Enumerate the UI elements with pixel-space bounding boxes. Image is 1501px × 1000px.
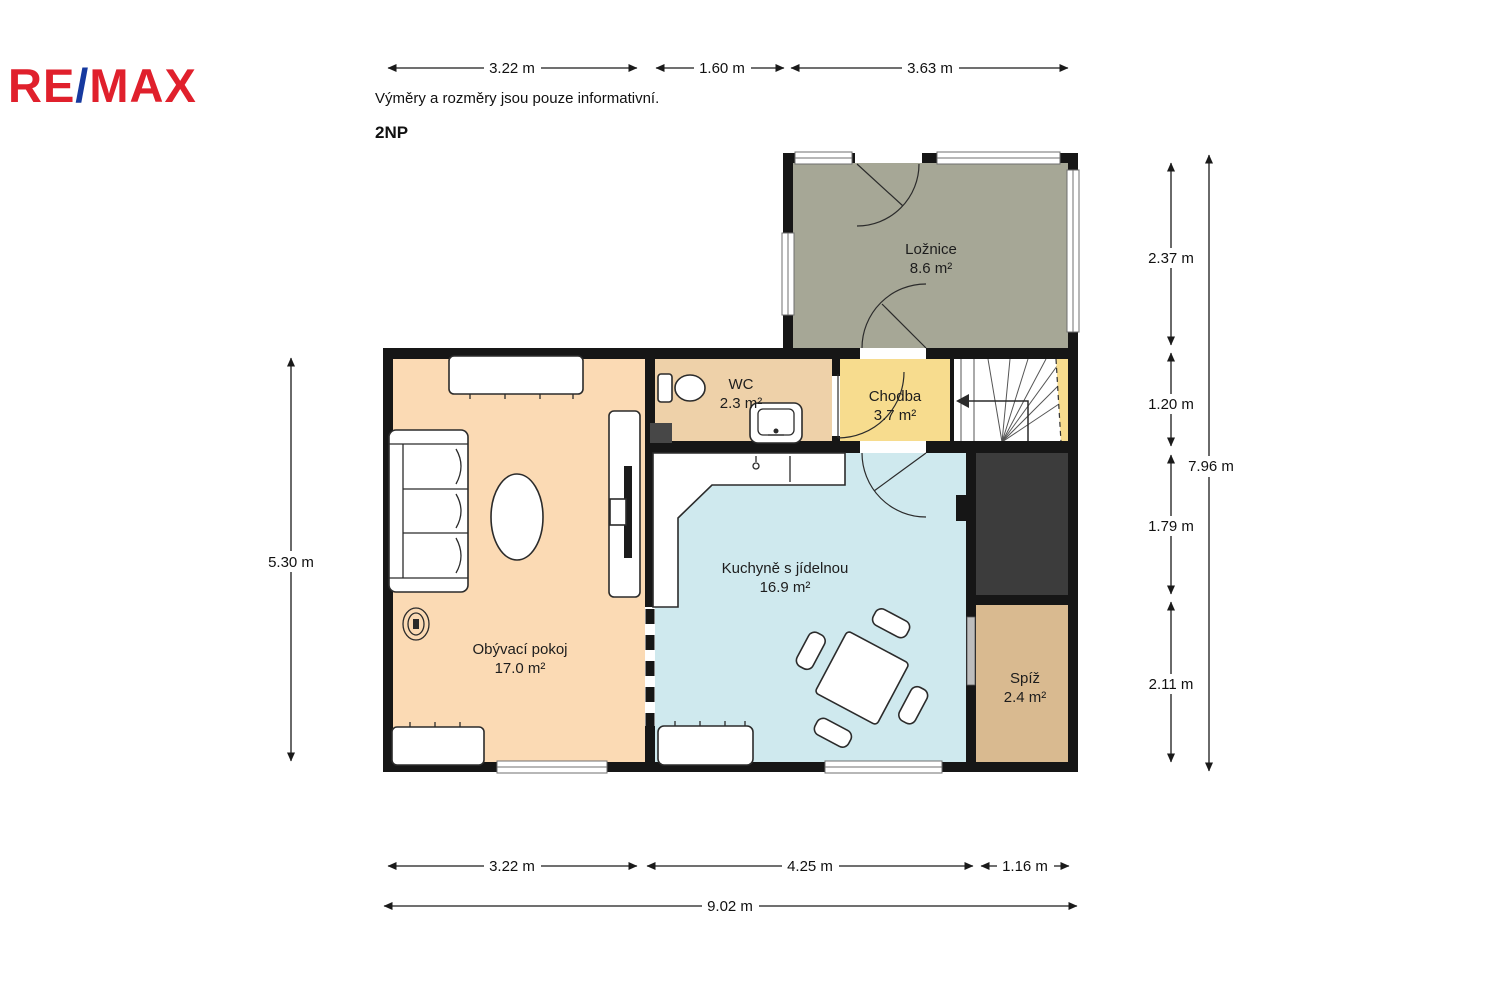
label-obyvaci-area: 17.0 m²: [495, 660, 546, 677]
dimension-bottom-3: 1.16 m: [981, 856, 1069, 876]
label-loznice-name: Ložnice: [905, 241, 957, 258]
dimension-bottom-2: 4.25 m: [647, 856, 973, 876]
dimension-right-4: 2.11 m: [1142, 602, 1200, 762]
label-wc-name: WC: [729, 376, 754, 393]
window-bedroom-right: [1067, 170, 1079, 332]
dimension-top-2: 1.60 m: [656, 58, 784, 78]
sideboard: [449, 356, 583, 399]
window-bedroom-top-right: [937, 152, 1060, 164]
dimension-bottom-1: 3.22 m: [388, 856, 637, 876]
label-spiz-area: 2.4 m²: [1004, 689, 1047, 706]
floor-plan: Ložnice 8.6 m² WC 2.3 m² Chodba 3.7 m² K…: [0, 0, 1501, 1000]
svg-text:1.16 m: 1.16 m: [1002, 858, 1048, 875]
svg-text:3.63 m: 3.63 m: [907, 60, 953, 77]
label-kuchyne-name: Kuchyně s jídelnou: [722, 560, 849, 577]
window-bedroom-left: [782, 233, 794, 315]
coffee-table: [491, 474, 543, 560]
label-loznice-area: 8.6 m²: [910, 260, 953, 277]
void-space: [968, 448, 1072, 600]
svg-text:5.30 m: 5.30 m: [268, 554, 314, 571]
dimension-top-1: 3.22 m: [388, 58, 637, 78]
window-bedroom-top-left: [795, 152, 852, 164]
label-spiz-name: Spíž: [1010, 670, 1040, 687]
label-kuchyne-area: 16.9 m²: [760, 579, 811, 596]
label-chodba-area: 3.7 m²: [874, 407, 917, 424]
wc-duct: [650, 423, 672, 443]
dimension-bottom-total: 9.02 m: [384, 896, 1077, 916]
window-living-bottom: [497, 761, 607, 773]
toilet: [658, 374, 705, 402]
label-chodba-name: Chodba: [869, 388, 922, 405]
dimension-right-2: 1.20 m: [1142, 353, 1200, 446]
svg-text:2.37 m: 2.37 m: [1148, 250, 1194, 267]
window-kitchen-bottom: [825, 761, 942, 773]
svg-text:7.96 m: 7.96 m: [1188, 458, 1234, 475]
living-kitchen-opening: [645, 607, 655, 726]
svg-text:1.60 m: 1.60 m: [699, 60, 745, 77]
svg-text:3.22 m: 3.22 m: [489, 60, 535, 77]
dimension-right-1: 2.37 m: [1142, 163, 1200, 345]
label-obyvaci-name: Obývací pokoj: [472, 641, 567, 658]
svg-text:1.20 m: 1.20 m: [1148, 396, 1194, 413]
tv-unit: [609, 411, 640, 597]
svg-text:2.11 m: 2.11 m: [1149, 676, 1194, 693]
sofa: [389, 430, 468, 592]
sliding-door-spiz: [967, 617, 975, 685]
label-wc-area: 2.3 m²: [720, 395, 763, 412]
svg-text:9.02 m: 9.02 m: [707, 898, 753, 915]
dimension-left: 5.30 m: [262, 358, 320, 761]
dimension-top-3: 3.63 m: [791, 58, 1068, 78]
kitchen-cabinet: [658, 721, 753, 765]
living-cabinet: [392, 722, 484, 765]
svg-text:4.25 m: 4.25 m: [787, 858, 833, 875]
floorplan-page: RE/MAX Výměry a rozměry jsou pouze infor…: [0, 0, 1501, 1000]
svg-text:3.22 m: 3.22 m: [489, 858, 535, 875]
svg-text:1.79 m: 1.79 m: [1148, 518, 1194, 535]
